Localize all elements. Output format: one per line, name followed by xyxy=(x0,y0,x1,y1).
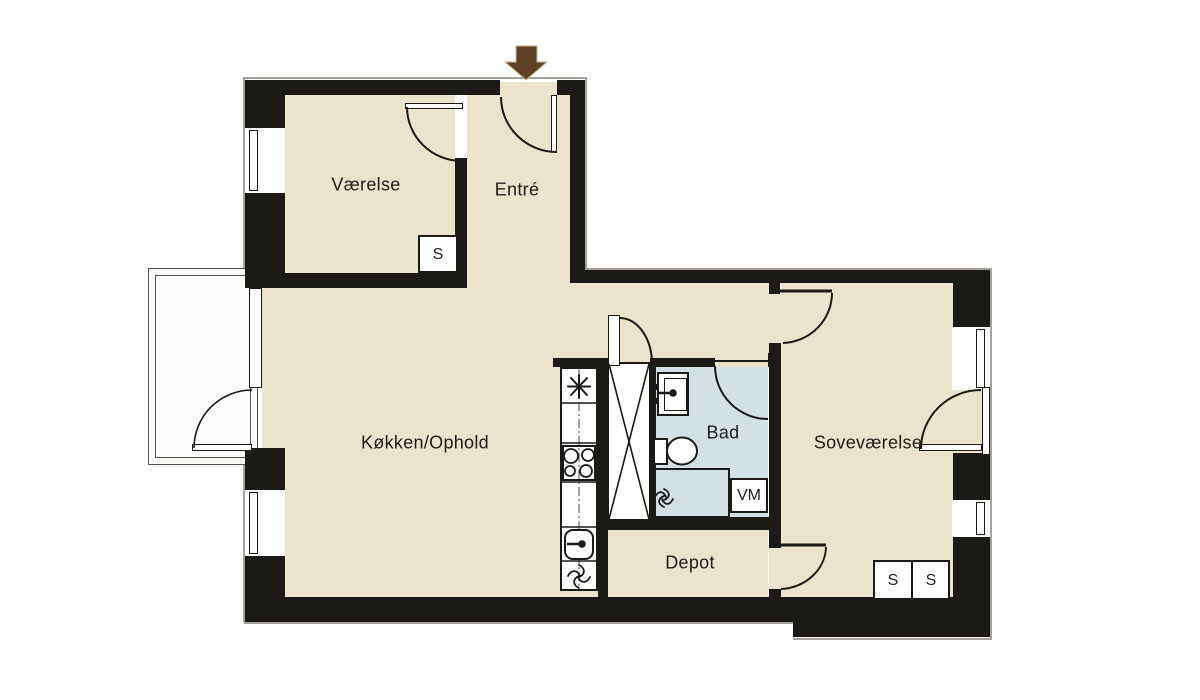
window-sove-lower-glazing xyxy=(976,502,985,535)
wall-right-lower xyxy=(953,537,990,600)
room-label-bad: Bad xyxy=(707,423,740,444)
room-label-kokken: Køkken/Ophold xyxy=(361,433,489,454)
wall-bottom-right xyxy=(793,597,990,637)
window-sove-upper-glazing xyxy=(976,329,985,388)
wall-right-upper xyxy=(953,270,990,327)
wall-left-lowmid xyxy=(245,448,285,490)
outline-bottom-right xyxy=(793,638,992,640)
outline-entre-east xyxy=(585,77,587,272)
wall-entre-east xyxy=(570,80,585,272)
wall-step xyxy=(570,270,990,283)
window-vaerelse-glazing xyxy=(249,130,258,191)
balcony-door-glazing xyxy=(249,288,262,388)
balcony-door-leaf xyxy=(192,444,252,451)
window-kokken-glazing xyxy=(249,492,258,554)
entrance-door-leaf xyxy=(551,95,557,152)
shower-area xyxy=(654,468,730,518)
outline-bottom-left xyxy=(244,622,806,624)
wall-left-bottom xyxy=(245,556,285,600)
kokken-balcony-strip xyxy=(262,288,283,448)
bathroom-sink-basin xyxy=(664,378,687,411)
room-label-depot: Depot xyxy=(665,553,715,574)
wall-sove-west xyxy=(769,343,781,548)
sove-balcony-door-frame xyxy=(982,387,990,455)
closet-label-sove-2: S xyxy=(926,572,937,590)
wall-vaerelse-bottom xyxy=(245,273,467,288)
room-label-sovevaerelse: Soveværelse xyxy=(814,433,922,454)
depot-door-gap xyxy=(769,548,781,589)
stove xyxy=(562,445,596,481)
hallway-floor xyxy=(570,283,770,367)
wall-bottom-left xyxy=(245,597,806,622)
balcony-inner-rail xyxy=(155,275,251,458)
outline-top xyxy=(244,77,587,79)
room-label-entre: Entré xyxy=(495,180,540,201)
entrance-door-gap xyxy=(500,82,557,95)
wall-sove-west-low xyxy=(769,589,781,601)
outline-right xyxy=(990,268,992,639)
room-label-vaerelse: Værelse xyxy=(331,175,400,196)
closet-label-vaerelse: S xyxy=(433,246,444,264)
floor-plan: Værelse Entré Køkken/Ophold Bad Sovevære… xyxy=(0,0,1200,700)
installation-shaft xyxy=(607,362,651,521)
sove-entry-door-gap xyxy=(769,294,781,343)
wall-right-mid xyxy=(953,453,990,500)
wall-left-corner xyxy=(245,80,285,128)
wall-bad-top xyxy=(651,358,715,367)
closet-label-sove-1: S xyxy=(888,572,899,590)
vaerelse-door-leaf xyxy=(405,103,463,109)
sove-balcony-door-leaf xyxy=(919,444,982,451)
washing-machine-label: VM xyxy=(737,487,761,505)
shaft-door-leaf xyxy=(608,315,620,366)
wall-sove-west-stub xyxy=(769,282,780,294)
entrance-arrow xyxy=(505,46,547,80)
